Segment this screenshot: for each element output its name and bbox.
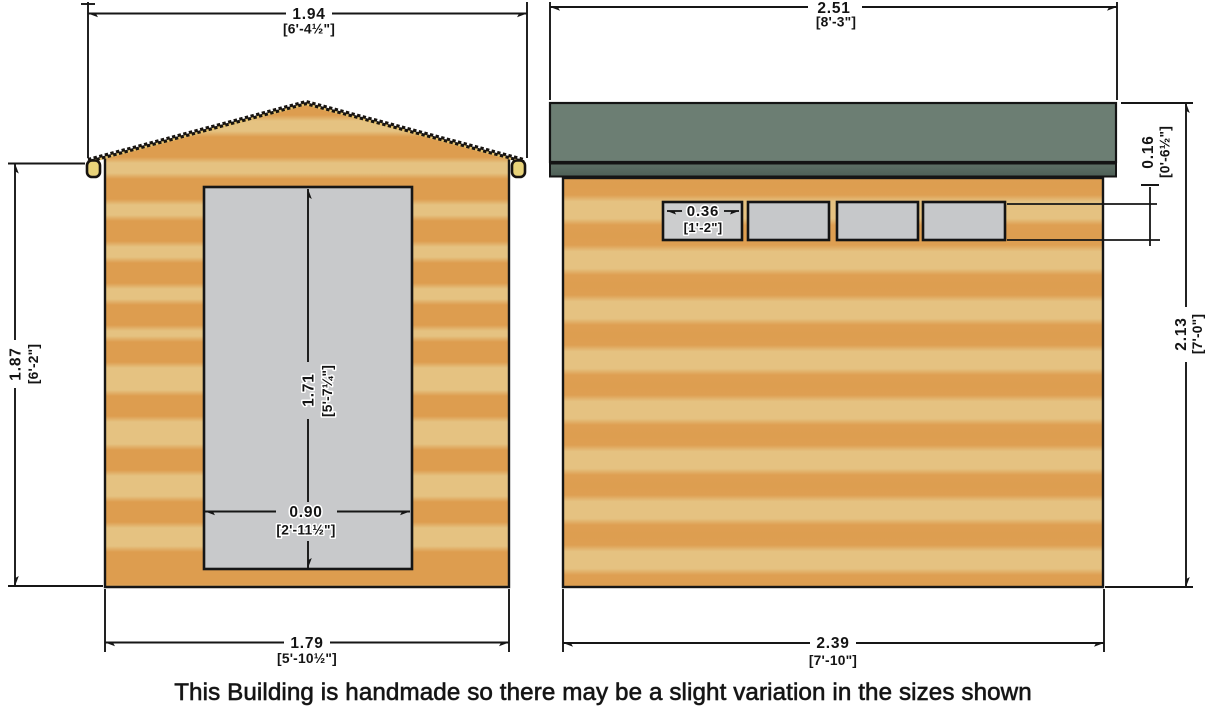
svg-text:1.87: 1.87 <box>8 347 25 380</box>
svg-text:[6'-4½"]: [6'-4½"] <box>283 22 335 37</box>
svg-text:[8'-3"]: [8'-3"] <box>816 15 856 30</box>
svg-text:[7'-0"]: [7'-0"] <box>1190 314 1205 354</box>
svg-text:[5'-7¼"]: [5'-7¼"] <box>320 365 335 417</box>
svg-text:1.94: 1.94 <box>292 6 325 23</box>
svg-text:This Building is handmade so t: This Building is handmade so there may b… <box>174 679 1032 706</box>
svg-text:2.13: 2.13 <box>1173 317 1190 350</box>
svg-text:[5'-10½"]: [5'-10½"] <box>277 651 337 666</box>
svg-text:1.71: 1.71 <box>301 373 318 406</box>
svg-text:[0'-6½"]: [0'-6½"] <box>1158 126 1173 178</box>
svg-text:[6'-2"]: [6'-2"] <box>26 344 41 384</box>
svg-text:[2'-11½"]: [2'-11½"] <box>276 523 335 538</box>
svg-text:0.90: 0.90 <box>289 504 322 521</box>
svg-text:2.39: 2.39 <box>816 635 849 652</box>
svg-text:0.16: 0.16 <box>1140 135 1157 168</box>
svg-text:0.36: 0.36 <box>687 203 719 220</box>
svg-text:[7'-10"]: [7'-10"] <box>809 653 857 668</box>
svg-text:[1'-2"]: [1'-2"] <box>684 220 723 235</box>
svg-text:1.79: 1.79 <box>290 635 323 652</box>
